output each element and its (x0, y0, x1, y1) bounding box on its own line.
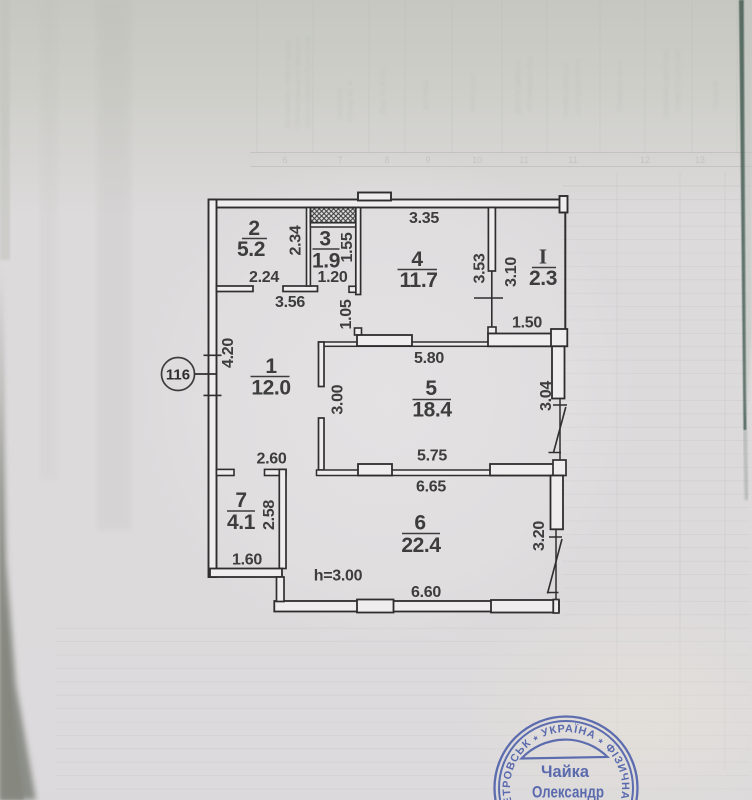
svg-text:реєстрову книгу: реєстрову книгу (573, 59, 582, 115)
svg-text:2.34: 2.34 (288, 225, 305, 255)
svg-text:4.20: 4.20 (220, 338, 237, 368)
svg-text:3: 3 (319, 227, 330, 250)
svg-text:Державна реєстрац: Державна реєстрац (661, 48, 670, 118)
svg-text:4: 4 (411, 248, 423, 271)
svg-text:Дійсна вартість буд и спор: Дійсна вартість буд и спор (303, 36, 312, 128)
svg-text:7: 7 (235, 489, 246, 512)
svg-text:11: 11 (568, 155, 577, 165)
svg-text:6: 6 (414, 512, 425, 535)
svg-text:12.0: 12.0 (251, 377, 290, 400)
svg-text:Примітки про а: Примітки про а (615, 59, 624, 112)
svg-text:6.65: 6.65 (416, 479, 446, 496)
svg-text:1.60: 1.60 (232, 552, 262, 569)
svg-text:116: 116 (166, 367, 190, 384)
svg-text:13: 13 (695, 155, 705, 165)
svg-text:3.10: 3.10 (503, 257, 520, 287)
svg-text:корисна пл: корисна пл (468, 74, 477, 112)
svg-text:5.2: 5.2 (237, 238, 265, 261)
svg-text:2.24: 2.24 (249, 269, 279, 286)
svg-text:h=3.00: h=3.00 (314, 568, 363, 585)
svg-text:5: 5 (425, 377, 437, 400)
svg-text:I: I (539, 245, 547, 269)
svg-text:22.4: 22.4 (401, 534, 441, 557)
svg-text:Загальна: Загальна (335, 87, 344, 120)
svg-text:10: 10 (472, 155, 482, 165)
svg-text:18.4: 18.4 (412, 399, 452, 422)
svg-text:5.75: 5.75 (417, 448, 447, 465)
svg-text:3.04: 3.04 (538, 381, 555, 411)
svg-text:6: 6 (282, 155, 287, 165)
svg-text:1.05: 1.05 (338, 299, 355, 329)
svg-text:2.60: 2.60 (257, 451, 287, 468)
svg-text:2.3: 2.3 (529, 267, 557, 290)
svg-text:Балансова і повна відбуд: Балансова і повна відбуд (283, 39, 292, 128)
svg-text:3.35: 3.35 (409, 210, 439, 227)
svg-text:обстеження буд: обстеження буд (525, 56, 534, 112)
svg-text:Олександр: Олександр (532, 783, 604, 800)
svg-text:3.20: 3.20 (531, 521, 548, 551)
svg-text:11.7: 11.7 (399, 269, 437, 292)
svg-text:Чайка: Чайка (541, 762, 590, 781)
svg-text:2.58: 2.58 (261, 500, 278, 530)
svg-text:1: 1 (265, 355, 277, 378)
svg-text:1.20: 1.20 (318, 269, 348, 286)
svg-text:Сбалансована та фактичн: Сбалансована та фактичн (293, 38, 302, 130)
svg-text:Номер запису в: Номер запису в (561, 63, 570, 118)
svg-text:2: 2 (248, 217, 259, 240)
svg-text:5.80: 5.80 (414, 350, 444, 367)
svg-text:3.00: 3.00 (329, 384, 346, 414)
svg-text:11: 11 (519, 155, 528, 165)
svg-text:Дата та джерел: Дата та джерел (513, 61, 522, 115)
svg-text:Приміткі: Приміткі (711, 81, 720, 110)
svg-text:12: 12 (640, 155, 650, 165)
svg-text:3.56: 3.56 (275, 294, 305, 311)
svg-text:(буд. та Ж кв.): (буд. та Ж кв.) (378, 65, 387, 115)
svg-text:1.55: 1.55 (339, 232, 356, 262)
svg-text:3.53: 3.53 (472, 253, 489, 283)
svg-text:номер та дата зап: номер та дата зап (673, 49, 682, 112)
svg-text:площа кв. м: площа кв. м (345, 80, 354, 122)
svg-text:6.60: 6.60 (411, 584, 441, 601)
svg-text:4.1: 4.1 (227, 511, 256, 534)
svg-text:1.50: 1.50 (512, 315, 542, 332)
svg-text:житлова: житлова (421, 80, 430, 110)
